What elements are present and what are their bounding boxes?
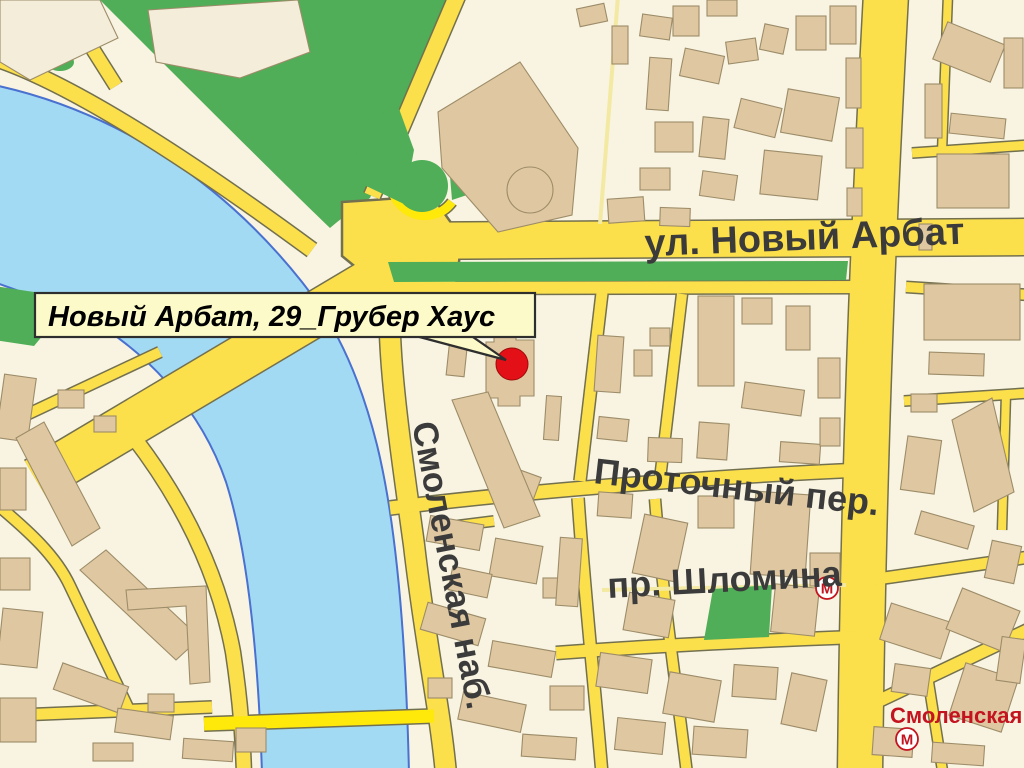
building [925,84,942,138]
building [0,698,36,742]
building [931,742,984,766]
building [830,6,856,44]
building [148,694,174,712]
building [428,678,452,698]
building [796,16,826,50]
road-segment [860,0,886,768]
building [594,335,624,393]
building [93,743,133,761]
building [640,168,670,190]
building [911,394,937,412]
building [543,396,561,441]
building [0,468,26,510]
building [781,89,840,141]
road-segment [204,716,434,724]
building [597,416,629,441]
building [707,0,737,16]
building [742,298,772,324]
building [924,284,1020,340]
building [650,328,670,346]
building [726,38,759,64]
city-map[interactable]: М М Смоленская ул. Новый Арбат Проточный… [0,0,1024,768]
building [663,672,722,722]
building [699,117,729,159]
building [820,418,840,446]
building [673,6,699,36]
metro-letter: М [901,732,914,749]
median-green [388,261,848,282]
building [891,664,931,697]
building [929,352,985,376]
garden-circle [396,160,448,212]
station-label-smolenskaya: Смоленская [890,703,1022,728]
building [818,358,840,398]
building [732,665,778,700]
building [646,57,672,110]
building [58,390,84,408]
callout-label: Новый Арбат, 29_Грубер Хаус [48,301,495,333]
building [597,492,633,518]
building [655,122,693,152]
building [596,653,652,694]
building [94,416,116,432]
building [846,128,863,168]
building [0,558,30,590]
building [521,734,576,760]
building [1004,38,1023,88]
building [697,422,729,460]
building [550,686,584,710]
building [640,14,673,40]
building [692,726,748,758]
building [236,728,266,752]
building [182,738,233,761]
building [0,608,43,668]
building [634,350,652,376]
map-viewport[interactable]: М М Смоленская ул. Новый Арбат Проточный… [0,0,1024,768]
building [698,296,734,386]
building [847,188,862,216]
building [779,442,820,465]
building [489,538,543,584]
building [612,26,628,64]
road-segment [390,287,868,288]
building [699,171,737,201]
address-marker[interactable] [496,348,528,380]
metro-station-smolenskaya[interactable]: М [896,728,918,750]
building [846,58,861,108]
building [760,24,789,54]
building [937,154,1009,208]
building-round [507,167,553,213]
building [760,150,822,200]
building [786,306,810,350]
building [900,436,941,494]
building [614,718,665,755]
building [607,197,645,223]
building [556,537,583,606]
